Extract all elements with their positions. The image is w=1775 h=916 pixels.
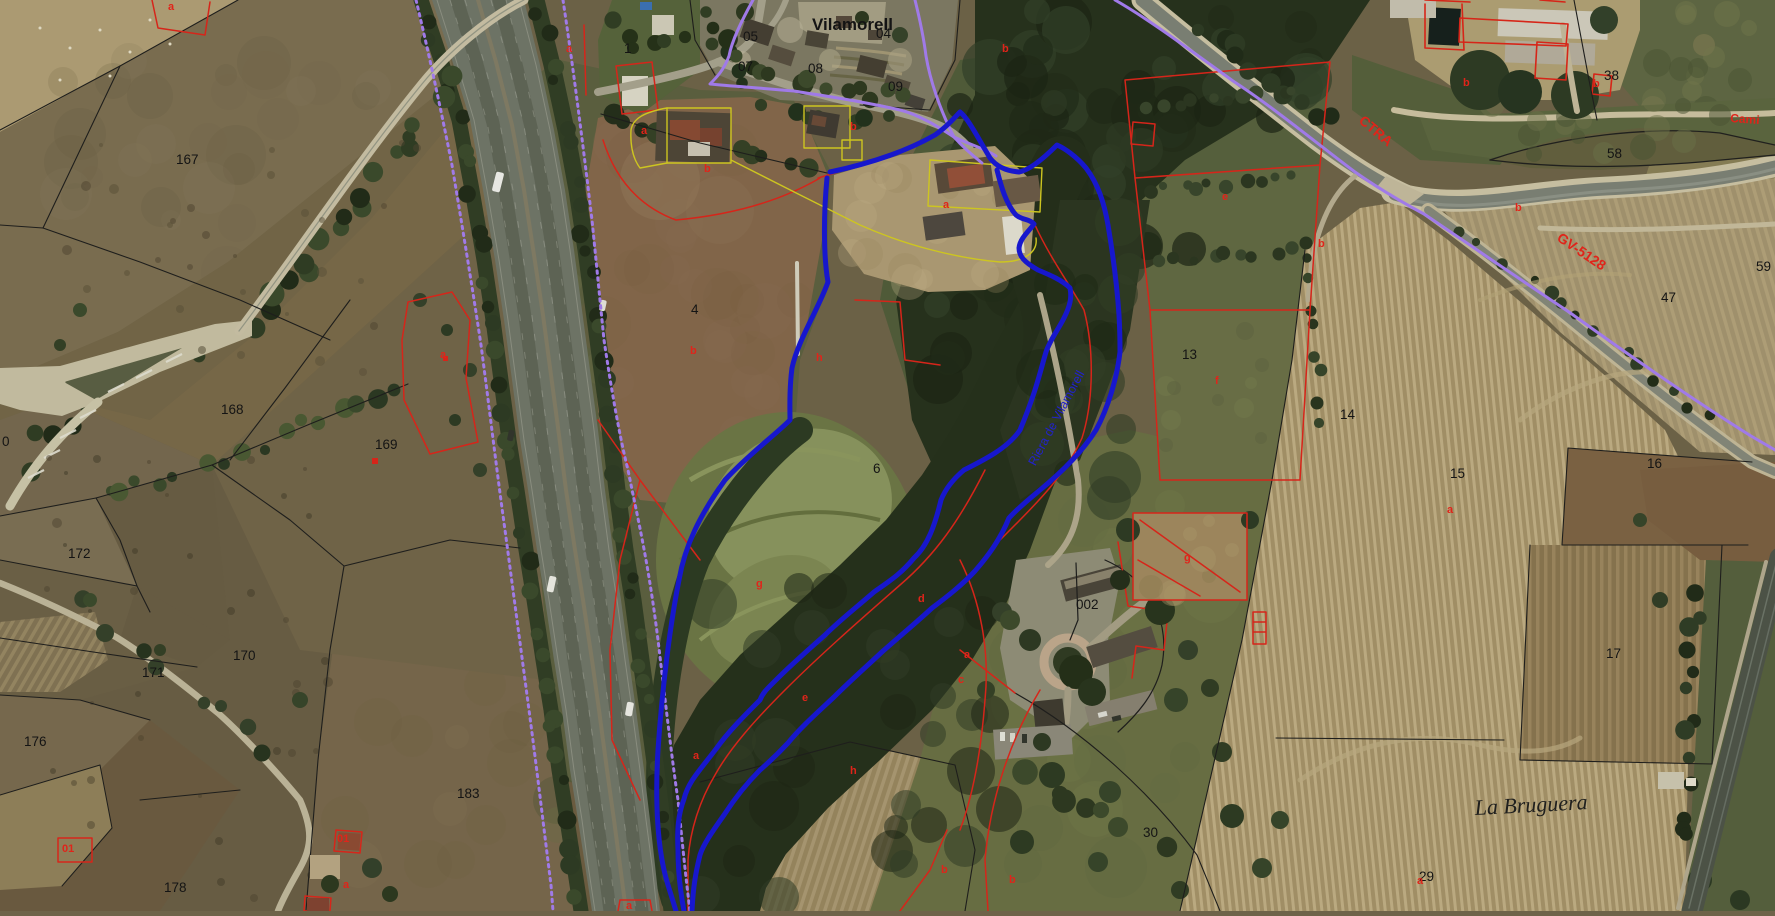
svg-text:c: c [958,674,964,686]
svg-text:b: b [1002,43,1009,55]
svg-text:15: 15 [1450,466,1465,481]
svg-text:d: d [918,593,925,605]
svg-text:47: 47 [1661,290,1676,305]
svg-text:Cami: Cami [1730,111,1760,127]
svg-text:a: a [1447,504,1454,516]
svg-text:b: b [690,345,697,357]
svg-text:38: 38 [1604,68,1619,83]
svg-text:168: 168 [221,402,244,417]
svg-text:a: a [943,199,950,211]
svg-text:0: 0 [2,434,10,449]
svg-text:a: a [1417,875,1424,887]
svg-text:171: 171 [142,665,165,680]
svg-text:05: 05 [743,29,758,44]
svg-text:a: a [964,649,971,661]
svg-text:a: a [693,750,700,762]
svg-text:a: a [626,900,633,911]
svg-text:14: 14 [1340,407,1356,422]
svg-text:b: b [1593,78,1600,90]
svg-text:16: 16 [1647,456,1662,471]
svg-text:b: b [941,864,948,876]
svg-text:30: 30 [1143,825,1158,840]
svg-text:172: 172 [68,546,91,561]
svg-text:4: 4 [691,302,699,317]
svg-text:b: b [1463,77,1470,89]
svg-text:58: 58 [1607,146,1622,161]
svg-text:13: 13 [1182,347,1197,362]
svg-text:b: b [1009,874,1016,886]
svg-text:g: g [1184,552,1191,564]
svg-text:167: 167 [176,152,199,167]
svg-text:6: 6 [873,461,881,476]
svg-text:a: a [440,349,447,361]
svg-text:1: 1 [624,41,632,56]
svg-text:b: b [1318,238,1325,250]
svg-text:07: 07 [738,59,753,74]
svg-text:b: b [704,163,711,175]
svg-text:01: 01 [62,843,74,855]
svg-text:59: 59 [1756,259,1771,274]
svg-text:176: 176 [24,734,47,749]
svg-text:g: g [756,578,763,590]
svg-text:a: a [641,125,648,137]
svg-text:08: 08 [808,61,823,76]
svg-text:a: a [566,43,573,55]
svg-text:a: a [168,1,175,13]
svg-text:e: e [1222,191,1228,203]
svg-text:183: 183 [457,786,480,801]
svg-text:002: 002 [1076,597,1099,612]
svg-text:f: f [1215,375,1219,387]
svg-text:169: 169 [375,437,398,452]
svg-text:170: 170 [233,648,256,663]
svg-text:178: 178 [164,880,187,895]
svg-text:Vilamorell: Vilamorell [812,15,893,34]
svg-text:b: b [1515,202,1522,214]
svg-text:09: 09 [888,79,903,94]
svg-text:17: 17 [1606,646,1621,661]
svg-text:a: a [343,879,350,891]
svg-text:b: b [850,121,857,133]
svg-text:e: e [802,692,808,704]
svg-text:h: h [850,765,857,777]
svg-text:h: h [816,352,823,364]
svg-text:01: 01 [337,833,349,845]
